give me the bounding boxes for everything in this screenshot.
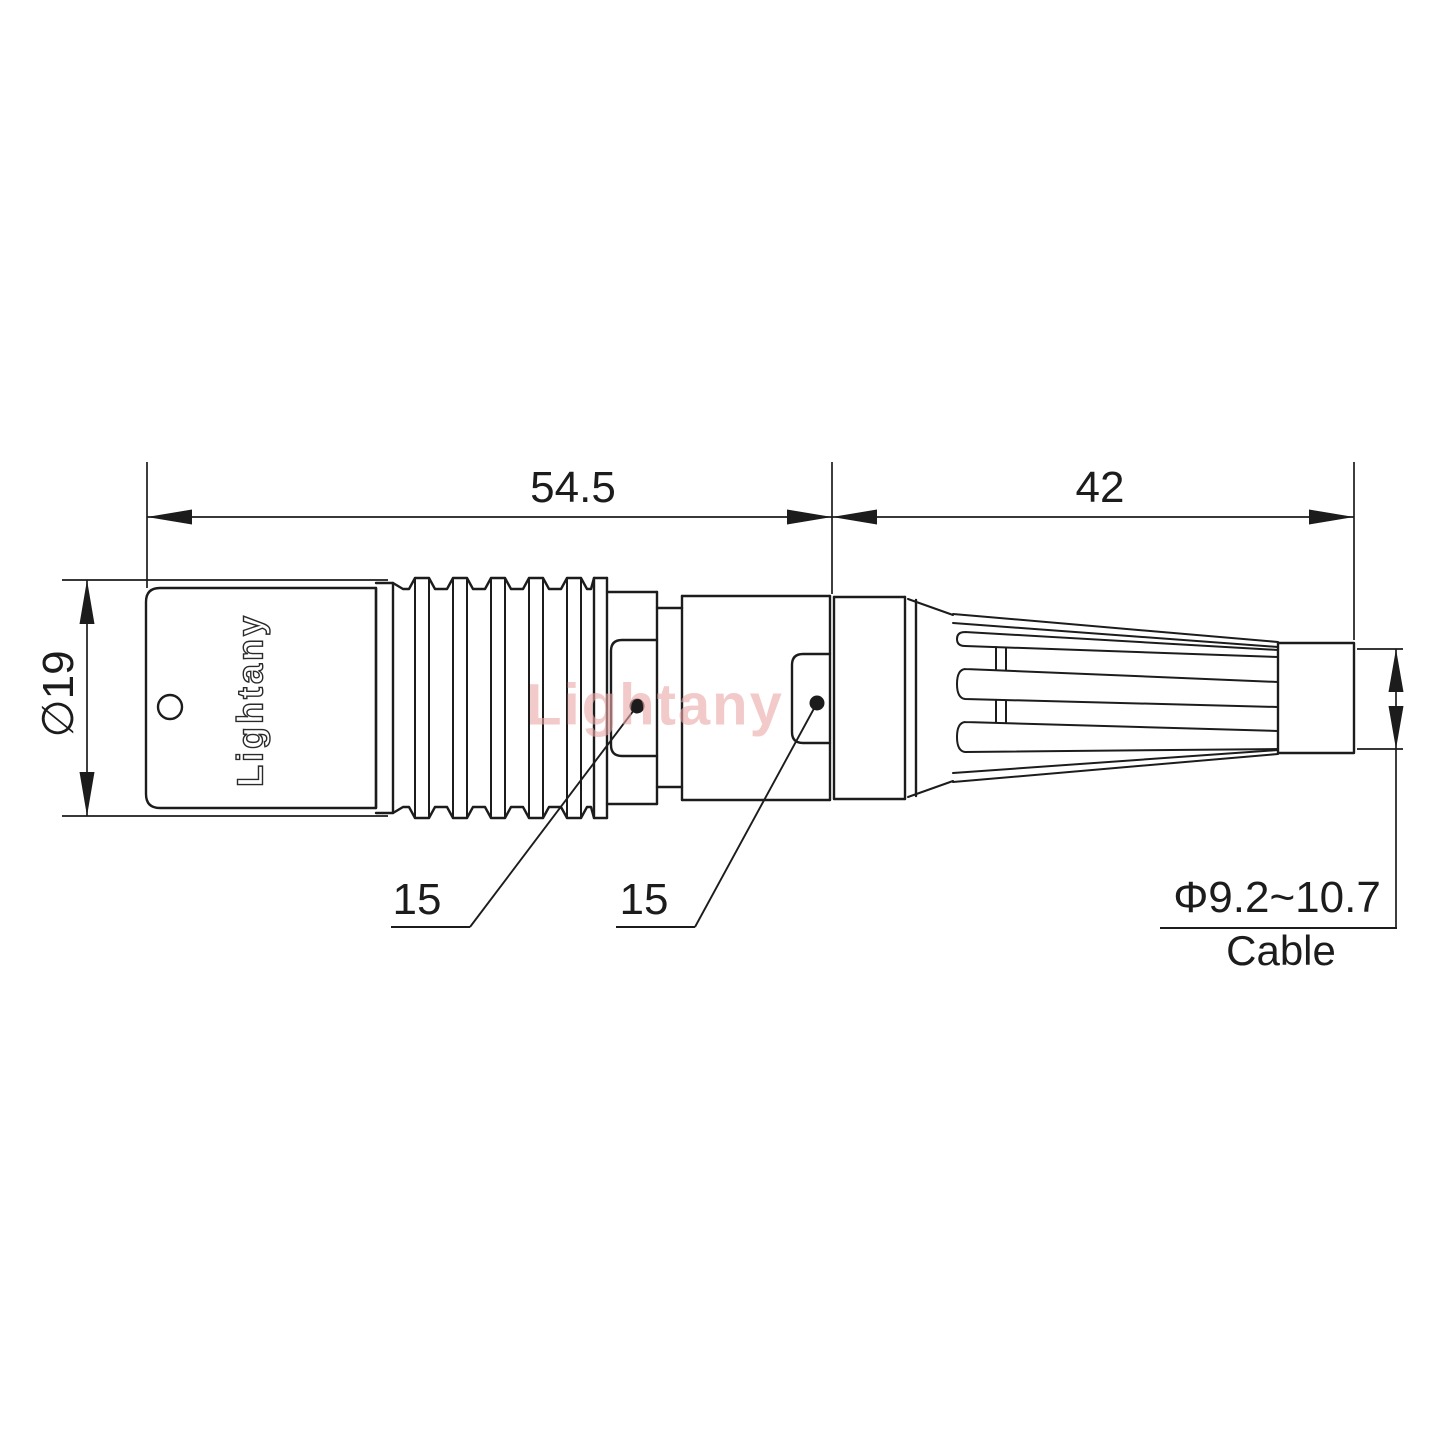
watermark-text: Lightany <box>526 672 784 739</box>
cable-collar <box>1278 643 1354 753</box>
arrowhead-up-icon <box>1389 649 1404 692</box>
dimension-label-front-length: 54.5 <box>530 466 616 510</box>
leader-label-left: 15 <box>393 878 442 922</box>
body-brand-label: Lightany <box>230 613 271 787</box>
arrowhead-up-icon <box>80 580 95 624</box>
dimension-label-body-diameter: ∅19 <box>37 650 81 737</box>
leader-dot-icon <box>810 696 825 711</box>
dimension-front-length <box>147 462 832 594</box>
cable-diameter-range-label: Φ9.2~10.7 <box>1173 876 1381 920</box>
arrowhead-down-icon <box>80 772 95 816</box>
arrowhead-left-icon <box>147 510 192 525</box>
arrowhead-down-icon <box>1389 706 1404 749</box>
dimension-label-boot-length: 42 <box>1076 466 1125 510</box>
arrowhead-left-icon <box>832 510 877 525</box>
arrowhead-right-icon <box>787 510 832 525</box>
leader-label-right: 15 <box>620 878 669 922</box>
technical-drawing-canvas: Lightany 54.5 42 ∅19 15 15 Φ9.2~10.7 Cab… <box>0 0 1440 1440</box>
cable-word-label: Cable <box>1226 930 1336 972</box>
arrowhead-right-icon <box>1309 510 1354 525</box>
